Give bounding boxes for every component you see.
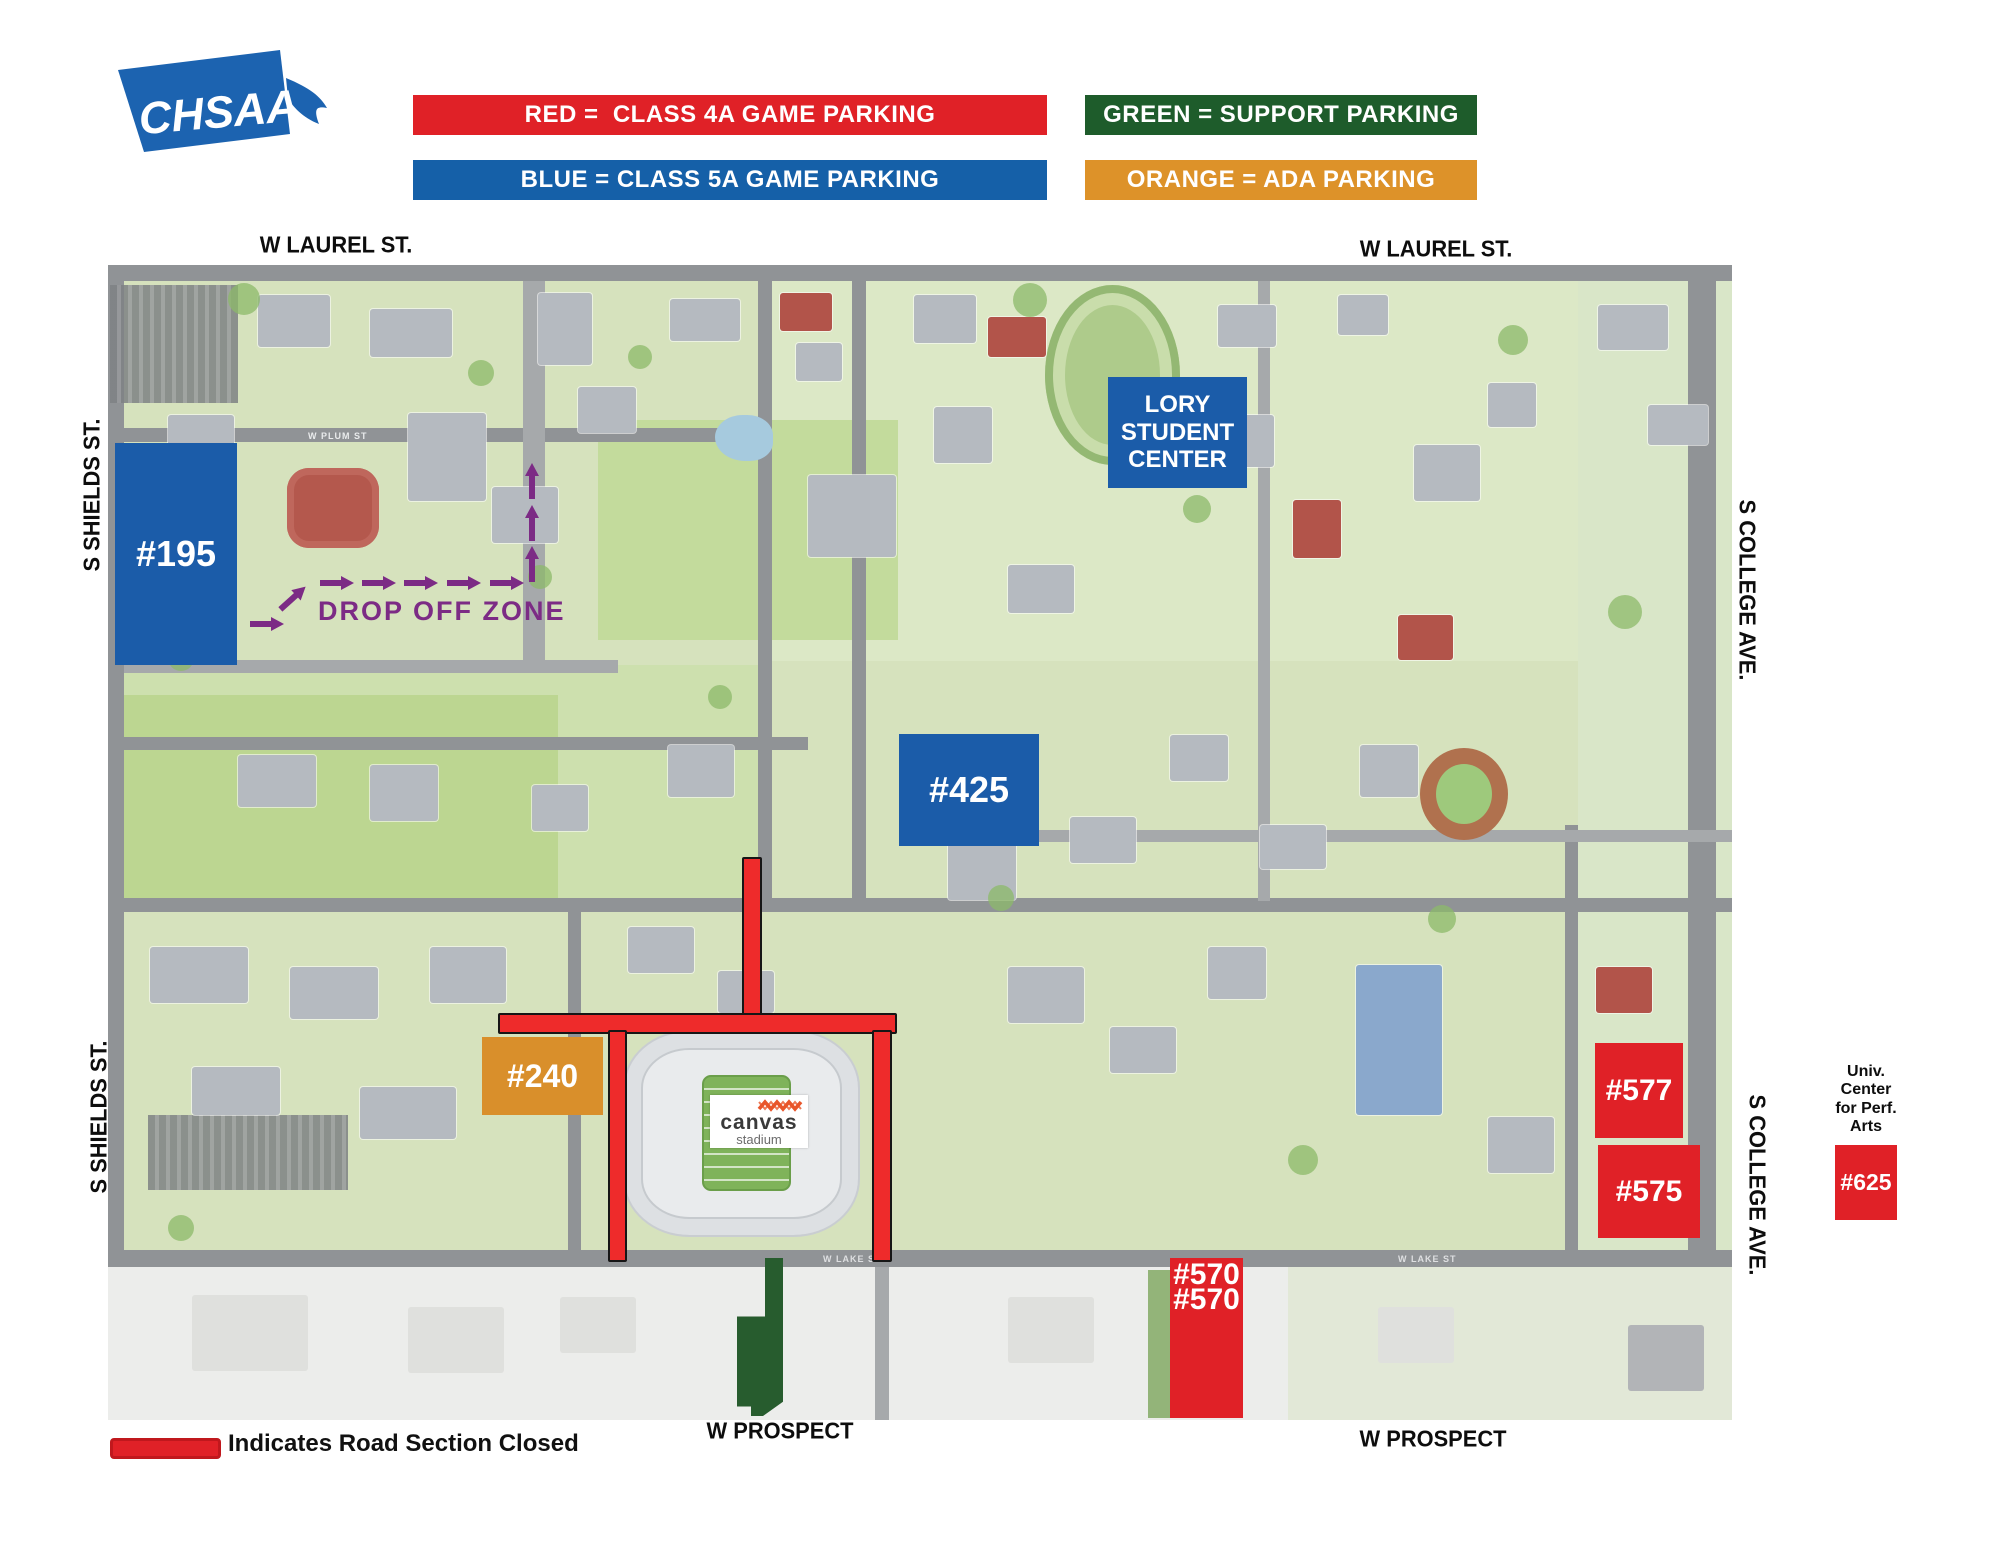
map-trees [1608,595,1642,629]
road-label-plum: W PLUM ST [308,431,368,441]
legend-red-class4a: RED = CLASS 4A GAME PARKING [413,95,1047,135]
street-label-laurel-right: W LAUREL ST. [1360,236,1513,263]
map-trees [1428,905,1456,933]
map-pond [715,415,773,461]
street-label-shields-top: S SHIELDS ST. [79,419,106,572]
univ-center-perf-arts-label: Univ. Center for Perf. Arts [1818,1063,1914,1137]
legend-blue-class5a: BLUE = CLASS 5A GAME PARKING [413,160,1047,200]
map-parking-lot-texture [148,1115,348,1190]
map-road-shields [108,265,124,1420]
map-building [1208,947,1266,999]
map-building [238,755,316,807]
map-building-red [780,293,832,331]
street-label-college-top: S COLLEGE AVE. [1734,500,1761,681]
map-building [914,295,976,343]
map-building [1008,565,1074,613]
map-building [538,293,592,365]
map-building [532,785,588,831]
road-closure-bar [872,1030,892,1262]
map-track-infield [1436,764,1492,824]
road-closure-bar [498,1013,897,1034]
map-building [1070,817,1136,863]
canvas-stadium-label: canvas stadium [710,1095,808,1148]
drop-off-arrow-up-icon [525,505,539,541]
map-moby-arena [287,468,379,548]
map-trees [228,283,260,315]
map-building [150,947,248,1003]
street-label-college-bottom: S COLLEGE AVE. [1744,1095,1771,1276]
map-building [934,407,992,463]
chsaa-logo: CHSAA [112,46,330,164]
drop-off-arrow-icon [404,576,438,590]
map-building [1170,735,1228,781]
map-running-track [1420,748,1508,840]
map-building-faded [1008,1297,1094,1363]
legend-orange-ada: ORANGE = ADA PARKING [1085,160,1477,200]
map-building [1648,405,1708,445]
univ-center-line: Arts [1818,1118,1914,1136]
drop-off-arrow-icon [320,576,354,590]
map-building [370,765,438,821]
map-parking-lot-texture [110,285,238,403]
map-building [668,745,734,797]
map-building-red [988,317,1046,357]
map-trees [988,885,1014,911]
parking-lot-240: #240 [482,1037,603,1115]
map-road [875,1267,889,1420]
map-building [1598,305,1668,350]
map-road [1565,825,1578,1250]
canvas-logo-icon [757,1099,803,1113]
road-closure-bar [608,1030,627,1262]
parking-lot-625: #625 [1835,1145,1897,1220]
map-building-faded [408,1307,504,1373]
stadium-name: canvas [710,1112,808,1133]
univ-center-line: for Perf. [1818,1100,1914,1118]
map-building [1008,967,1084,1023]
map-building [808,475,896,557]
street-label-prospect-left: W PROSPECT [707,1418,854,1445]
map-trees [468,360,494,386]
map-building-faded [192,1295,308,1371]
street-label-prospect-right: W PROSPECT [1360,1426,1507,1453]
drop-off-zone-label: DROP OFF ZONE [318,596,566,627]
drop-off-arrow-icon [362,576,396,590]
parking-lot-570: #570 [1170,1258,1243,1418]
stadium-subtitle: stadium [710,1133,808,1146]
map-trees [1183,495,1211,523]
drop-off-arrow-up-icon [525,463,539,499]
map-building [1628,1325,1704,1391]
map-building [360,1087,456,1139]
map-building [1488,383,1536,427]
map-building [578,387,636,433]
parking-lot-575: #575 [1598,1145,1700,1238]
drop-off-arrow-icon [250,617,284,631]
road-closure-note: Indicates Road Section Closed [228,1430,579,1458]
map-building [1110,1027,1176,1073]
parking-lot-570-label: #570 [1170,1283,1243,1317]
map-trees [1013,283,1047,317]
road-closure-swatch [110,1438,221,1459]
lory-line: STUDENT [1121,419,1234,447]
lory-line: CENTER [1128,446,1227,474]
map-trees [628,345,652,369]
map-building-faded [1378,1307,1454,1363]
parking-lot-425: #425 [899,734,1039,846]
lory-line: LORY [1145,391,1211,419]
drop-off-arrow-icon [447,576,481,590]
map-building [290,967,378,1019]
drop-off-arrow-up-icon [525,546,539,582]
map-trees [1498,325,1528,355]
road-label-lake: W LAKE ST [1398,1254,1457,1264]
map-road-laurel [108,265,1732,281]
road-closure-bar [742,857,762,1021]
map-building [1488,1117,1554,1173]
map-building [192,1067,280,1115]
univ-center-line: Center [1818,1081,1914,1099]
univ-center-line: Univ. [1818,1063,1914,1081]
chsaa-parking-map-page: CHSAA RED = CLASS 4A GAME PARKING BLUE =… [0,0,2000,1545]
map-building-faded [560,1297,636,1353]
map-building [670,299,740,341]
map-building [1218,305,1276,347]
legend-green-support: GREEN = SUPPORT PARKING [1085,95,1477,135]
map-tree-row [1148,1270,1170,1418]
map-building [1360,745,1418,797]
map-building [1338,295,1388,335]
map-road [758,281,772,901]
map-road-lake [108,1250,1732,1267]
map-building-red [1596,967,1652,1013]
map-building-blue [1356,965,1442,1115]
drop-off-arrow-icon [490,576,524,590]
lory-student-center-box: LORY STUDENT CENTER [1108,377,1247,488]
campus-map: W PLUM ST W LAKE ST W LAKE ST [108,265,1732,1420]
map-building [628,927,694,973]
map-trees [708,685,732,709]
map-building [796,343,842,381]
map-trees [1288,1145,1318,1175]
map-building-red [1398,615,1453,660]
map-building [408,413,486,501]
map-sports-fields [108,695,558,898]
map-building-red [1293,500,1341,558]
map-building [430,947,506,1003]
map-road-pitkin [108,898,1732,912]
parking-lot-577: #577 [1595,1043,1683,1138]
drop-off-arrow-icon [276,581,311,614]
map-building [370,309,452,357]
map-building [1414,445,1480,501]
parking-lot-195: #195 [115,443,237,665]
street-label-laurel-left: W LAUREL ST. [260,232,413,259]
map-road [1258,281,1270,901]
map-building [258,295,330,347]
map-building [1260,825,1326,869]
map-trees [168,1215,194,1241]
map-road [852,281,866,912]
